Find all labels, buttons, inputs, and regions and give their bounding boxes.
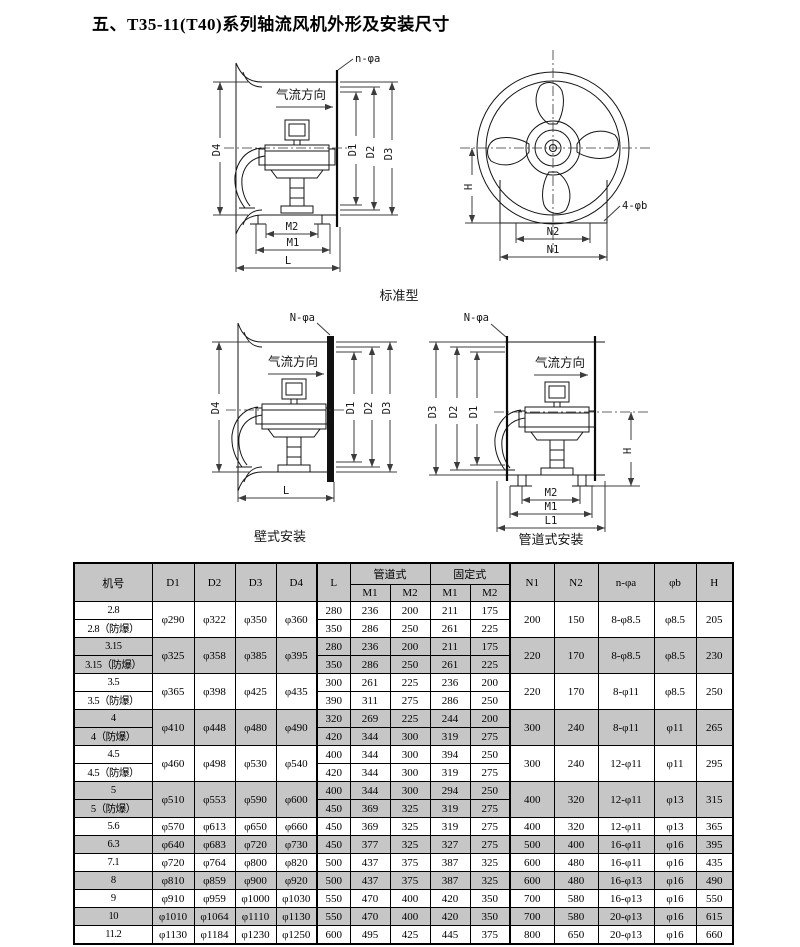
dim-label-d4: D4: [210, 402, 222, 415]
table-cell: φ11: [654, 710, 696, 746]
spec-table-container: 机号 D1 D2 D3 D4 L 管道式 固定式 N1 N2 n-φa φb H…: [73, 562, 734, 945]
table-cell: 325: [470, 872, 510, 890]
table-cell: 275: [470, 836, 510, 854]
dim-label-m2: M2: [545, 487, 558, 499]
table-cell: 269: [350, 710, 390, 728]
table-cell: φ8.5: [654, 674, 696, 710]
table-cell: 550: [696, 890, 733, 908]
table-cell: 344: [350, 728, 390, 746]
table-cell: 445: [430, 926, 470, 945]
table-cell: 286: [350, 656, 390, 674]
table-cell: 200: [470, 674, 510, 692]
table-cell: 275: [470, 728, 510, 746]
table-cell: φ410: [152, 710, 194, 746]
col-header-fixed-m1: M1: [430, 585, 470, 602]
table-cell: 6.3: [74, 836, 152, 854]
table-cell: φ1064: [194, 908, 235, 926]
table-cell: 3.15: [74, 638, 152, 656]
table-row: 11.2φ1130φ1184φ1230φ12506004954254453758…: [74, 926, 733, 945]
table-cell: 320: [554, 782, 598, 818]
dim-label-l1: L1: [545, 515, 558, 527]
foot-bolt-label: 4-φb: [622, 200, 647, 212]
table-cell: 375: [390, 872, 430, 890]
table-cell: 311: [350, 692, 390, 710]
dim-label-d4: D4: [211, 144, 223, 157]
table-cell: 375: [390, 854, 430, 872]
table-cell: φ720: [152, 854, 194, 872]
table-cell: φ1010: [152, 908, 194, 926]
table-cell: 420: [430, 908, 470, 926]
table-cell: 3.5: [74, 674, 152, 692]
table-cell: 5（防爆）: [74, 800, 152, 818]
table-cell: 400: [390, 890, 430, 908]
table-cell: 295: [696, 746, 733, 782]
table-cell: φ720: [235, 836, 276, 854]
table-cell: 4（防爆）: [74, 728, 152, 746]
table-cell: 275: [470, 818, 510, 836]
bolt-holes-label: n-φa: [355, 53, 380, 65]
table-cell: 280: [317, 602, 350, 620]
table-row: 9φ910φ959φ1000φ1030550470400420350700580…: [74, 890, 733, 908]
table-cell: 319: [430, 818, 470, 836]
dim-label-d1: D1: [345, 402, 357, 415]
table-cell: 375: [470, 926, 510, 945]
table-cell: φ1230: [235, 926, 276, 945]
table-cell: 175: [470, 638, 510, 656]
table-cell: φ810: [152, 872, 194, 890]
table-cell: 387: [430, 872, 470, 890]
table-cell: 10: [74, 908, 152, 926]
table-cell: 300: [390, 746, 430, 764]
table-cell: 211: [430, 638, 470, 656]
table-cell: φ322: [194, 602, 235, 638]
table-cell: 550: [317, 908, 350, 926]
col-header-duct-m2: M2: [390, 585, 430, 602]
table-cell: 580: [554, 890, 598, 908]
table-cell: φ8.5: [654, 602, 696, 638]
spec-table-header: 机号 D1 D2 D3 D4 L 管道式 固定式 N1 N2 n-φa φb H…: [74, 563, 733, 602]
table-cell: φ16: [654, 908, 696, 926]
table-cell: 615: [696, 908, 733, 926]
table-cell: 800: [510, 926, 554, 945]
table-cell: 435: [696, 854, 733, 872]
table-cell: 350: [470, 908, 510, 926]
table-cell: φ13: [654, 818, 696, 836]
duct-mount-diagram: N-φa 气流方向 D1 D2 D3 H M2 M1 L1: [427, 312, 648, 532]
table-cell: 387: [430, 854, 470, 872]
table-cell: 205: [696, 602, 733, 638]
motor-assembly: [495, 382, 595, 475]
table-cell: 369: [350, 818, 390, 836]
table-cell: 400: [317, 746, 350, 764]
table-cell: 420: [317, 728, 350, 746]
table-cell: 365: [696, 818, 733, 836]
table-cell: φ350: [235, 602, 276, 638]
table-cell: φ1130: [152, 926, 194, 945]
table-cell: 320: [554, 818, 598, 836]
table-cell: φ1000: [235, 890, 276, 908]
table-cell: 236: [430, 674, 470, 692]
table-cell: 325: [390, 800, 430, 818]
table-cell: 265: [696, 710, 733, 746]
table-cell: 300: [510, 710, 554, 746]
table-cell: φ1130: [276, 908, 317, 926]
dim-label-d2: D2: [365, 146, 377, 159]
table-cell: φ398: [194, 674, 235, 710]
table-cell: 240: [554, 710, 598, 746]
table-cell: φ510: [152, 782, 194, 818]
table-cell: 300: [390, 764, 430, 782]
dim-label-d2: D2: [448, 406, 460, 419]
table-cell: φ920: [276, 872, 317, 890]
table-cell: 286: [350, 620, 390, 638]
table-cell: φ365: [152, 674, 194, 710]
table-cell: 420: [430, 890, 470, 908]
table-cell: 175: [470, 602, 510, 620]
col-header-n2: N2: [554, 563, 598, 602]
table-cell: 211: [430, 602, 470, 620]
table-cell: 12-φ11: [598, 782, 654, 818]
table-cell: φ764: [194, 854, 235, 872]
table-cell: 275: [390, 692, 430, 710]
table-cell: φ358: [194, 638, 235, 674]
table-cell: 225: [390, 710, 430, 728]
dim-label-n2: N2: [547, 226, 560, 238]
table-cell: 220: [510, 638, 554, 674]
table-cell: φ1110: [235, 908, 276, 926]
table-cell: 250: [390, 656, 430, 674]
table-cell: 319: [430, 800, 470, 818]
table-cell: 261: [430, 656, 470, 674]
col-header-phi-b: φb: [654, 563, 696, 602]
col-header-d2: D2: [194, 563, 235, 602]
dim-label-d3: D3: [381, 402, 393, 415]
table-cell: 220: [510, 674, 554, 710]
motor-assembly: [232, 379, 332, 472]
table-row: 4.5φ460φ498φ530φ540400344300394250300240…: [74, 746, 733, 764]
table-cell: 3.5（防爆）: [74, 692, 152, 710]
table-cell: 225: [390, 674, 430, 692]
table-cell: 327: [430, 836, 470, 854]
col-header-duct-type: 管道式: [350, 563, 430, 585]
table-cell: 261: [430, 620, 470, 638]
table-cell: φ16: [654, 890, 696, 908]
table-cell: 325: [470, 854, 510, 872]
table-cell: 395: [696, 836, 733, 854]
dim-label-h: H: [622, 448, 634, 454]
table-row: 4φ410φ448φ480φ4903202692252442003002408-…: [74, 710, 733, 728]
table-cell: 250: [470, 692, 510, 710]
table-cell: 4: [74, 710, 152, 728]
spec-table-body: 2.8φ290φ322φ350φ360280236200211175200150…: [74, 602, 733, 945]
table-cell: φ8.5: [654, 638, 696, 674]
dim-label-h: H: [463, 184, 475, 190]
table-cell: 20-φ13: [598, 926, 654, 945]
dim-label-d3: D3: [427, 406, 439, 419]
table-cell: 3.15（防爆）: [74, 656, 152, 674]
table-cell: 425: [390, 926, 430, 945]
col-header-machine-no: 机号: [74, 563, 152, 602]
col-header-fixed-type: 固定式: [430, 563, 510, 585]
table-cell: 8: [74, 872, 152, 890]
table-cell: 16-φ13: [598, 890, 654, 908]
table-cell: φ1184: [194, 926, 235, 945]
table-cell: φ1030: [276, 890, 317, 908]
table-cell: φ480: [235, 710, 276, 746]
table-cell: 300: [390, 728, 430, 746]
airflow-direction-label: 气流方向: [535, 355, 585, 370]
table-cell: φ385: [235, 638, 276, 674]
motor-assembly: [235, 120, 335, 213]
table-cell: φ910: [152, 890, 194, 908]
table-cell: φ570: [152, 818, 194, 836]
table-cell: 344: [350, 746, 390, 764]
table-cell: φ490: [276, 710, 317, 746]
table-cell: φ540: [276, 746, 317, 782]
table-cell: 225: [470, 656, 510, 674]
table-cell: 390: [317, 692, 350, 710]
table-row: 5φ510φ553φ590φ60040034430029425040032012…: [74, 782, 733, 800]
col-header-d1: D1: [152, 563, 194, 602]
table-cell: 319: [430, 764, 470, 782]
table-cell: 480: [554, 872, 598, 890]
standard-front-view-diagram: H 4-φb N2 N1: [460, 50, 650, 261]
bolt-holes-label: N-φa: [290, 312, 315, 324]
dim-label-d3: D3: [383, 148, 395, 161]
table-cell: 700: [510, 908, 554, 926]
table-cell: φ859: [194, 872, 235, 890]
table-cell: 200: [510, 602, 554, 638]
col-header-fixed-m2: M2: [470, 585, 510, 602]
table-cell: φ16: [654, 854, 696, 872]
table-cell: φ425: [235, 674, 276, 710]
table-cell: 470: [350, 908, 390, 926]
table-cell: 170: [554, 674, 598, 710]
table-cell: 300: [317, 674, 350, 692]
table-cell: φ395: [276, 638, 317, 674]
table-cell: 7.1: [74, 854, 152, 872]
table-cell: 20-φ13: [598, 908, 654, 926]
table-cell: 490: [696, 872, 733, 890]
table-cell: 244: [430, 710, 470, 728]
table-cell: φ683: [194, 836, 235, 854]
dim-label-m1: M1: [287, 237, 300, 249]
col-header-l: L: [317, 563, 350, 602]
table-cell: 650: [554, 926, 598, 945]
table-cell: 250: [390, 620, 430, 638]
table-cell: 350: [317, 620, 350, 638]
table-row: 3.5φ365φ398φ425φ435300261225236200220170…: [74, 674, 733, 692]
col-header-d4: D4: [276, 563, 317, 602]
table-cell: 500: [317, 854, 350, 872]
table-cell: 200: [390, 602, 430, 620]
col-header-h: H: [696, 563, 733, 602]
table-cell: 495: [350, 926, 390, 945]
dim-label-m1: M1: [545, 501, 558, 513]
table-row: 6.3φ640φ683φ720φ730450377325327275500400…: [74, 836, 733, 854]
table-cell: 437: [350, 872, 390, 890]
table-cell: 600: [317, 926, 350, 945]
caption-duct-mount: 管道式安装: [518, 532, 583, 547]
table-row: 5.6φ570φ613φ650φ660450369325319275400320…: [74, 818, 733, 836]
table-cell: 600: [510, 854, 554, 872]
table-cell: 400: [554, 836, 598, 854]
table-cell: φ900: [235, 872, 276, 890]
table-cell: 300: [390, 782, 430, 800]
table-cell: 275: [470, 800, 510, 818]
table-cell: 344: [350, 782, 390, 800]
table-cell: 400: [510, 782, 554, 818]
table-cell: φ13: [654, 782, 696, 818]
spec-table: 机号 D1 D2 D3 D4 L 管道式 固定式 N1 N2 n-φa φb H…: [73, 562, 734, 945]
col-header-n-phi-a: n-φa: [598, 563, 654, 602]
table-cell: 660: [696, 926, 733, 945]
table-cell: 400: [317, 782, 350, 800]
table-cell: 700: [510, 890, 554, 908]
standard-side-view-diagram: 气流方向 n-φa D4 D1 D2 D3 M2 M1 L: [211, 53, 398, 272]
dim-label-d1: D1: [468, 406, 480, 419]
table-cell: φ959: [194, 890, 235, 908]
table-cell: 236: [350, 602, 390, 620]
table-cell: φ553: [194, 782, 235, 818]
table-cell: 261: [350, 674, 390, 692]
table-cell: 394: [430, 746, 470, 764]
table-cell: φ16: [654, 836, 696, 854]
table-cell: φ498: [194, 746, 235, 782]
table-cell: 400: [510, 818, 554, 836]
table-cell: 236: [350, 638, 390, 656]
table-cell: 250: [470, 782, 510, 800]
table-cell: 250: [696, 674, 733, 710]
table-cell: 230: [696, 638, 733, 674]
table-cell: φ448: [194, 710, 235, 746]
table-cell: φ360: [276, 602, 317, 638]
table-cell: φ730: [276, 836, 317, 854]
table-cell: φ800: [235, 854, 276, 872]
table-cell: 300: [510, 746, 554, 782]
table-cell: 250: [470, 746, 510, 764]
airflow-direction-label: 气流方向: [268, 354, 318, 369]
diagrams-canvas: 气流方向 n-φa D4 D1 D2 D3 M2 M1 L: [0, 0, 800, 560]
col-header-duct-m1: M1: [350, 585, 390, 602]
table-cell: 369: [350, 800, 390, 818]
table-cell: φ16: [654, 872, 696, 890]
dim-label-l: L: [285, 255, 291, 267]
table-cell: φ650: [235, 818, 276, 836]
dim-label-n1: N1: [547, 244, 560, 256]
table-cell: 315: [696, 782, 733, 818]
table-cell: 4.5（防爆）: [74, 764, 152, 782]
table-cell: 170: [554, 638, 598, 674]
table-row: 7.1φ720φ764φ800φ820500437375387325600480…: [74, 854, 733, 872]
table-cell: φ1250: [276, 926, 317, 945]
table-cell: 286: [430, 692, 470, 710]
table-cell: 450: [317, 800, 350, 818]
table-cell: 470: [350, 890, 390, 908]
table-cell: 450: [317, 836, 350, 854]
table-cell: 325: [390, 818, 430, 836]
dim-label-m2: M2: [286, 221, 299, 233]
bolt-holes-label: N-φa: [464, 312, 489, 324]
table-cell: 319: [430, 728, 470, 746]
table-cell: 420: [317, 764, 350, 782]
table-cell: 8-φ11: [598, 710, 654, 746]
table-cell: 437: [350, 854, 390, 872]
table-cell: 500: [510, 836, 554, 854]
table-row: 8φ810φ859φ900φ92050043737538732560048016…: [74, 872, 733, 890]
col-header-d3: D3: [235, 563, 276, 602]
table-cell: 200: [390, 638, 430, 656]
table-cell: 377: [350, 836, 390, 854]
table-cell: 8-φ8.5: [598, 602, 654, 638]
table-cell: 350: [470, 890, 510, 908]
table-cell: φ11: [654, 746, 696, 782]
table-cell: 150: [554, 602, 598, 638]
table-cell: 9: [74, 890, 152, 908]
table-cell: φ530: [235, 746, 276, 782]
table-cell: 225: [470, 620, 510, 638]
table-cell: 16-φ13: [598, 872, 654, 890]
table-cell: 280: [317, 638, 350, 656]
table-cell: 294: [430, 782, 470, 800]
table-cell: φ660: [276, 818, 317, 836]
dim-label-d2: D2: [363, 402, 375, 415]
table-cell: 5: [74, 782, 152, 800]
table-cell: 350: [317, 656, 350, 674]
col-header-n1: N1: [510, 563, 554, 602]
table-cell: 600: [510, 872, 554, 890]
table-cell: 16-φ11: [598, 836, 654, 854]
caption-wall-mount: 壁式安装: [254, 529, 306, 544]
table-cell: 200: [470, 710, 510, 728]
table-cell: φ640: [152, 836, 194, 854]
table-cell: 5.6: [74, 818, 152, 836]
table-cell: φ290: [152, 602, 194, 638]
table-row: 2.8φ290φ322φ350φ360280236200211175200150…: [74, 602, 733, 620]
table-cell: 450: [317, 818, 350, 836]
wall-mount-diagram: N-φa 气流方向 D4 D1 D2 D3 L: [210, 312, 397, 502]
table-cell: 500: [317, 872, 350, 890]
table-cell: 580: [554, 908, 598, 926]
table-row: 3.15φ325φ358φ385φ39528023620021117522017…: [74, 638, 733, 656]
table-cell: 325: [390, 836, 430, 854]
table-cell: φ460: [152, 746, 194, 782]
table-cell: φ613: [194, 818, 235, 836]
dim-label-l: L: [283, 485, 289, 497]
dim-label-d1: D1: [347, 144, 359, 157]
table-cell: 8-φ8.5: [598, 638, 654, 674]
table-cell: 400: [390, 908, 430, 926]
table-cell: 480: [554, 854, 598, 872]
table-cell: 275: [470, 764, 510, 782]
table-cell: φ16: [654, 926, 696, 945]
table-cell: 240: [554, 746, 598, 782]
table-cell: 550: [317, 890, 350, 908]
table-cell: 12-φ11: [598, 746, 654, 782]
table-cell: 8-φ11: [598, 674, 654, 710]
airflow-direction-label: 气流方向: [276, 87, 326, 102]
table-cell: φ820: [276, 854, 317, 872]
table-cell: 344: [350, 764, 390, 782]
table-cell: 11.2: [74, 926, 152, 945]
table-cell: φ590: [235, 782, 276, 818]
table-cell: φ600: [276, 782, 317, 818]
table-cell: 4.5: [74, 746, 152, 764]
table-cell: 2.8: [74, 602, 152, 620]
table-cell: 16-φ11: [598, 854, 654, 872]
table-row: 10φ1010φ1064φ1110φ1130550470400420350700…: [74, 908, 733, 926]
caption-standard-type: 标准型: [379, 288, 418, 303]
